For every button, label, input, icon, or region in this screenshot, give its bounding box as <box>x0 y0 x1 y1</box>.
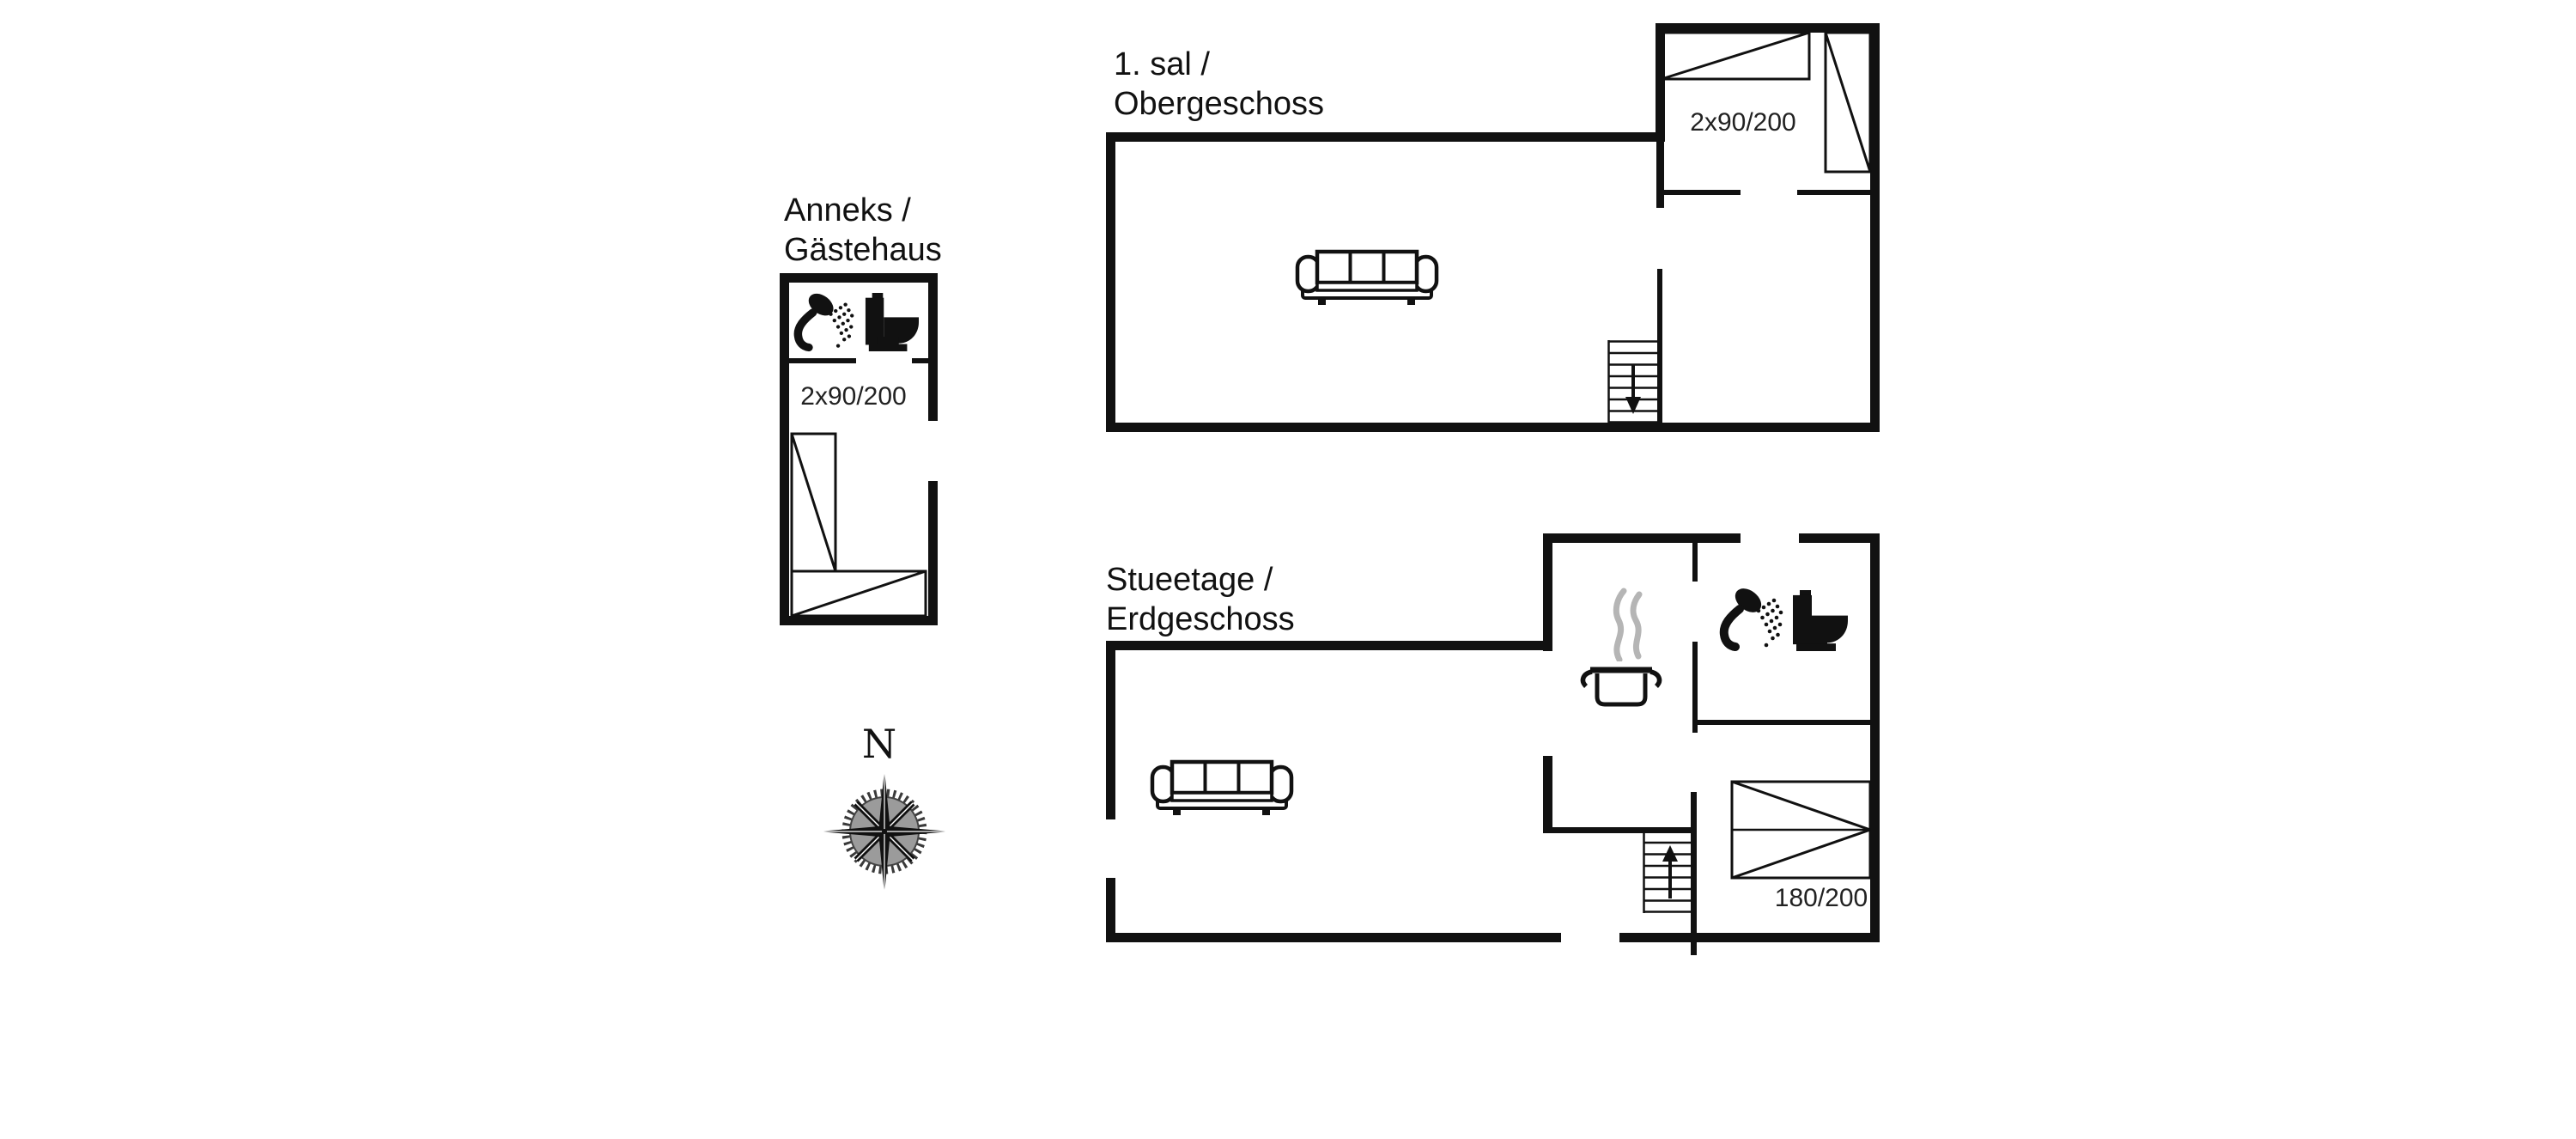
shower-icon <box>1717 585 1784 652</box>
upper-bedroom-wall-bottom-right <box>1797 190 1870 195</box>
ground-floor-title-line1: Stueetage / <box>1106 560 1295 600</box>
ground-floor-title-line2: Erdgeschoss <box>1106 600 1295 639</box>
sofa-icon <box>1295 249 1439 306</box>
ground-wall-kitchen-top-left <box>1543 533 1741 543</box>
annex-title: Anneks / Gästehaus <box>784 191 942 270</box>
annex-bed-dimension-label: 2x90/200 <box>768 384 939 410</box>
annex-wall-right-lower <box>928 481 938 625</box>
ground-wall-right <box>1870 533 1880 942</box>
ground-wall-livingroom-top <box>1106 641 1552 650</box>
floor-plan-page: 1. sal / Obergeschoss 2x90/200 <box>0 0 2576 1139</box>
ground-bathroom-wall-bottom <box>1698 720 1871 725</box>
ground-bathroom-divider-upper <box>1692 539 1698 582</box>
bed-icon <box>789 432 928 618</box>
cooking-pot-icon <box>1577 661 1666 709</box>
bed-icon <box>1730 779 1873 880</box>
upper-wall-top <box>1106 132 1665 142</box>
ground-wall-bottom-right <box>1619 933 1880 942</box>
toilet-icon <box>1791 590 1848 651</box>
ground-wall-bottom-left <box>1106 933 1561 942</box>
upper-wall-left <box>1106 132 1115 432</box>
ground-wall-kitchen-left-upper <box>1543 533 1552 651</box>
annex-wall-top <box>780 273 938 283</box>
ground-bedroom-wall <box>1691 792 1697 955</box>
annex-title-line2: Gästehaus <box>784 230 942 270</box>
ground-wall-kitchen-top-right <box>1799 533 1880 543</box>
upper-bedroom-wall-bottom-left <box>1660 190 1741 195</box>
annex-bathroom-divider-stub <box>912 358 928 363</box>
upper-wall-bottom <box>1106 423 1880 432</box>
annex-title-line1: Anneks / <box>784 191 942 230</box>
stairs-down-icon <box>1607 340 1657 423</box>
ground-wall-left-upper <box>1106 641 1115 819</box>
ground-floor-title: Stueetage / Erdgeschoss <box>1106 560 1295 639</box>
upper-floor-title-line1: 1. sal / <box>1114 45 1324 84</box>
shower-icon <box>792 290 855 352</box>
stairs-up-icon <box>1643 830 1692 913</box>
upper-floor-title: 1. sal / Obergeschoss <box>1114 45 1324 124</box>
annex-wall-left <box>780 273 789 625</box>
bed-icon <box>1660 26 1872 174</box>
stairs-down-arrow-icon <box>1625 364 1641 414</box>
upper-floor-title-line2: Obergeschoss <box>1114 84 1324 124</box>
toilet-icon <box>864 293 919 351</box>
ground-wall-kitchen-left-lower <box>1543 756 1552 832</box>
compass-north-label: N <box>862 721 896 767</box>
compass-rose-icon: N <box>814 720 955 900</box>
upper-stair-wall <box>1657 269 1662 423</box>
upper-bed-dimension-label: 2x90/200 <box>1657 110 1829 136</box>
ground-bed-dimension-label: 180/200 <box>1735 886 1907 911</box>
sofa-icon <box>1150 759 1294 816</box>
annex-bathroom-divider <box>789 358 856 363</box>
steam-icon <box>1607 588 1645 661</box>
